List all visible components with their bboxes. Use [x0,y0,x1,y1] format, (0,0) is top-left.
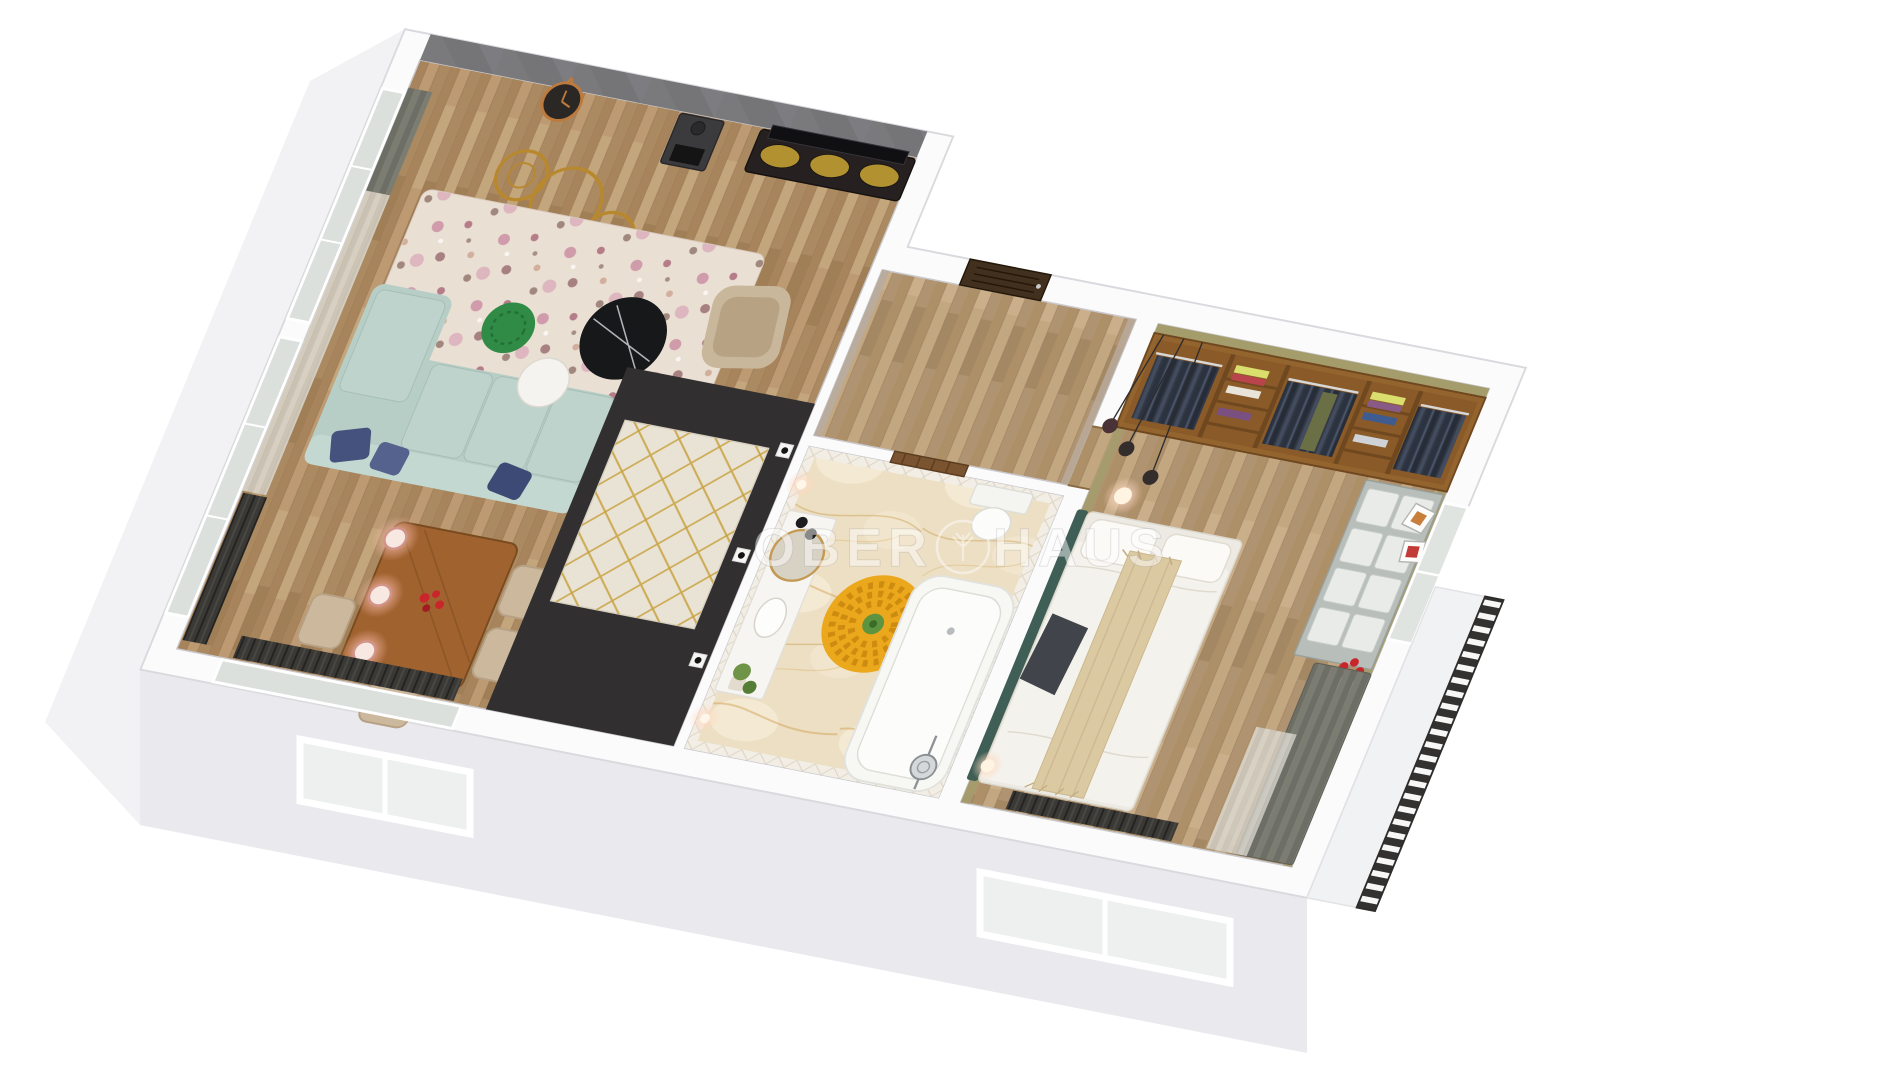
watermark-text-left: OBER [753,518,933,578]
floor-plan-render: OBER HAUS [0,0,1900,1081]
floor-plan-canvas: OBER HAUS [0,0,1900,1081]
navy-pillow-1 [329,427,371,463]
watermark-text-right: HAUS [993,518,1170,578]
